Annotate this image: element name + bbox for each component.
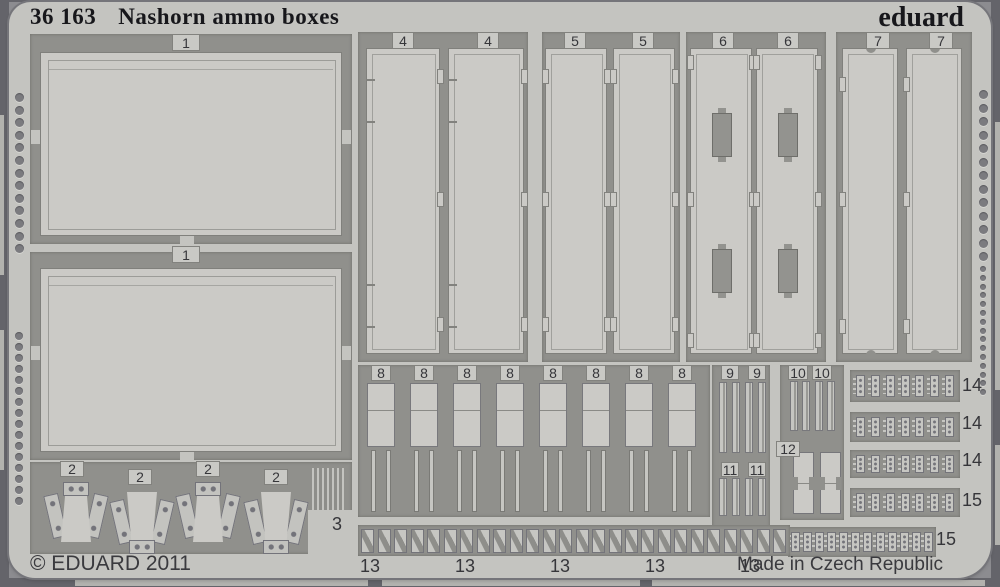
part-13-strap <box>543 529 556 553</box>
perforation-hole <box>15 453 23 461</box>
edge-bracket-tab <box>815 333 822 348</box>
part-8-strap <box>472 450 477 512</box>
part-number-tab-2: 2 <box>60 461 84 477</box>
clasp-part <box>915 417 924 437</box>
etch-line <box>551 54 603 350</box>
part-number-tab-7: 7 <box>866 32 890 49</box>
perforation-hole <box>15 244 24 253</box>
part-number: 14 <box>962 450 982 470</box>
part-8-strap <box>543 450 548 512</box>
perforation-hole <box>979 158 988 167</box>
carrier-bridge <box>341 346 351 360</box>
clasp-prongs <box>942 458 945 470</box>
etch-dash <box>366 121 375 123</box>
clasp-part <box>815 532 824 552</box>
etch-line <box>669 410 695 411</box>
part-number: 10 <box>814 365 830 381</box>
clasp-prongs <box>921 535 924 549</box>
edge-bracket-tab <box>687 192 694 207</box>
part-8-strap <box>644 450 649 512</box>
part-number-tab-2: 2 <box>128 469 152 485</box>
part-panel-1 <box>40 268 342 452</box>
bracket-cap <box>63 482 89 496</box>
part-number-tab-8: 8 <box>414 365 434 381</box>
part-8-plate <box>582 383 610 447</box>
part-9-strip <box>719 382 727 453</box>
clasp-part <box>803 532 812 552</box>
clasp-part <box>856 493 865 512</box>
part-number: 13 <box>360 556 380 576</box>
part-13-strap <box>477 529 490 553</box>
clasp-part <box>886 493 895 512</box>
clasp-part <box>886 375 895 397</box>
part-number: 13 <box>550 556 570 576</box>
etch-dash <box>366 284 375 286</box>
perforation-hole <box>15 387 23 395</box>
part-8-strap <box>429 450 434 512</box>
etch-dash <box>448 284 457 286</box>
part-number: 10 <box>790 365 806 381</box>
part-13-strap <box>641 529 654 553</box>
part-8-plate <box>496 383 524 447</box>
strap-row-13 <box>358 525 790 556</box>
clasp-prongs <box>860 535 863 549</box>
clasp-row <box>850 412 960 442</box>
perforation-hole <box>15 409 23 417</box>
edge-bracket-tab <box>839 77 846 92</box>
etch-fold-line <box>49 285 333 286</box>
edge-bracket-tab <box>687 333 694 348</box>
part-number-tab-1: 1 <box>172 34 200 51</box>
part-number-tab-4: 4 <box>477 32 499 49</box>
part-number-tab-12: 12 <box>776 441 800 457</box>
clasp-part <box>945 493 954 512</box>
part-number-tab-6: 6 <box>712 32 734 49</box>
part-number-text-15: 15 <box>962 490 992 510</box>
part-number-tab-1: 1 <box>172 246 200 263</box>
perforation-hole <box>15 169 24 178</box>
part-number: 7 <box>874 33 882 49</box>
clasp-part <box>871 493 880 512</box>
edge-bracket-tab <box>903 77 910 92</box>
part-number: 11 <box>750 462 765 478</box>
part-13-strap <box>658 529 671 553</box>
part-8-plate <box>453 383 481 447</box>
perforation-hole <box>15 219 24 228</box>
part-13-strap <box>609 529 622 553</box>
part-number-text-14: 14 <box>962 450 992 470</box>
clasp-part <box>915 455 924 473</box>
bracket-body <box>127 492 157 540</box>
edge-sliver <box>0 115 4 275</box>
clasp-prongs <box>942 378 945 394</box>
part-9-strip <box>758 382 766 453</box>
perforation-hole <box>15 464 23 472</box>
part-number-tab-4: 4 <box>392 32 414 49</box>
clasp-part <box>930 375 939 397</box>
perforation-hole <box>980 310 986 316</box>
perforation-hole <box>980 328 986 334</box>
etch-line <box>48 60 336 230</box>
part-number-tab-2: 2 <box>264 469 288 485</box>
part-number-tab-8: 8 <box>629 365 649 381</box>
product-title: Nashorn ammo boxes <box>118 4 339 30</box>
part-3-comb <box>312 468 344 514</box>
part-panel-1 <box>40 52 342 236</box>
edge-bracket-tab <box>437 192 444 207</box>
clasp-part <box>863 532 872 552</box>
perforation-hole <box>15 206 24 215</box>
part-12-piece <box>820 452 841 514</box>
part-number: 8 <box>635 365 643 381</box>
part-panel-5 <box>545 48 607 354</box>
fret-photo: 36 163 Nashorn ammo boxes eduard © EDUAR… <box>0 0 1000 587</box>
part-number-tab-11: 11 <box>721 462 739 477</box>
bracket-body <box>193 494 223 542</box>
latch-stub <box>718 108 726 113</box>
edge-sliver <box>75 580 368 586</box>
latch-stub <box>784 244 792 249</box>
clasp-part <box>930 455 939 473</box>
part-number: 11 <box>723 462 738 478</box>
part-number-tab-2: 2 <box>196 461 220 477</box>
perforation-hole <box>979 252 988 261</box>
clasp-part <box>871 455 880 473</box>
part-number-text-13: 13 <box>455 556 485 576</box>
part-number-text-14: 14 <box>962 413 992 433</box>
perforation-hole <box>979 117 988 126</box>
part-8-plate <box>668 383 696 447</box>
part-13-strap <box>757 529 770 553</box>
clasp-part <box>827 532 836 552</box>
clasp-part <box>901 493 910 512</box>
clasp-prongs <box>812 535 815 549</box>
part-number: 14 <box>962 375 982 395</box>
cut-notch <box>866 350 876 355</box>
clasp-part <box>886 455 895 473</box>
etch-line <box>848 54 894 350</box>
part-11-strip <box>758 478 766 516</box>
brand-logo: eduard <box>878 2 964 34</box>
clasp-part <box>945 417 954 437</box>
perforation-hole <box>980 354 986 360</box>
edge-bracket-tab <box>610 69 617 84</box>
clasp-part <box>901 417 910 437</box>
part-8-strap <box>515 450 520 512</box>
part-number: 6 <box>784 33 792 49</box>
clasp-prongs <box>800 535 803 549</box>
clasp-part <box>915 493 924 512</box>
perforation-hole <box>15 156 24 165</box>
part-number: 14 <box>962 413 982 433</box>
part-number: 3 <box>332 514 342 534</box>
part-number: 8 <box>420 365 428 381</box>
part-8-strap <box>386 450 391 512</box>
perforation-hole <box>15 365 23 373</box>
edge-bracket-tab <box>839 319 846 334</box>
part-11-strip <box>745 478 753 516</box>
part-2-bracket <box>111 488 173 554</box>
part-panel-5 <box>613 48 675 354</box>
latch-stub <box>718 293 726 298</box>
latch-block <box>712 113 732 157</box>
clasp-prongs <box>883 420 886 434</box>
sheet-header: 36 163 Nashorn ammo boxes <box>30 4 339 30</box>
etch-line <box>912 54 958 350</box>
clasp-prongs <box>883 458 886 470</box>
clasp-prongs <box>912 378 915 394</box>
part-13-strap <box>460 529 473 553</box>
clasp-part <box>915 375 924 397</box>
part-9-strip <box>745 382 753 453</box>
part-10-strip <box>802 381 810 431</box>
etch-line <box>540 410 566 411</box>
part-13-strap <box>691 529 704 553</box>
clasp-prongs <box>883 378 886 394</box>
clasp-prongs <box>836 535 839 549</box>
perforation-hole <box>15 497 23 505</box>
perforation-hole <box>980 363 986 369</box>
part-panel-7 <box>906 48 962 354</box>
part-13-strap <box>526 529 539 553</box>
edge-bracket-tab <box>542 192 549 207</box>
clasp-part <box>856 417 865 437</box>
clasp-prongs <box>868 378 871 394</box>
clasp-row <box>850 488 960 517</box>
edge-bracket-tab <box>521 317 528 332</box>
part-13-strap <box>773 529 786 553</box>
part-13-strap <box>394 529 407 553</box>
clasp-prongs <box>885 535 888 549</box>
part-number: 2 <box>68 461 76 477</box>
etch-line <box>454 54 520 350</box>
part-panel-6 <box>756 48 818 354</box>
part-11-strip <box>732 478 740 516</box>
part-number-text-13: 13 <box>550 556 580 576</box>
etch-fold-line <box>49 69 333 70</box>
clasp-part <box>888 532 897 552</box>
edge-bracket-tab <box>815 192 822 207</box>
part-8-plate <box>410 383 438 447</box>
part-2-bracket <box>45 482 107 548</box>
part-number-tab-10: 10 <box>812 365 832 380</box>
clasp-prongs <box>912 420 915 434</box>
latch-stub <box>718 244 726 249</box>
perforation-hole <box>15 232 24 241</box>
clasp-part <box>930 493 939 512</box>
part-number-tab-8: 8 <box>672 365 692 381</box>
edge-sliver <box>0 330 4 470</box>
clasp-prongs <box>853 496 856 509</box>
part-panel-6 <box>690 48 752 354</box>
photo-edge-left <box>0 0 9 587</box>
part-number-tab-8: 8 <box>500 365 520 381</box>
perforation-hole <box>15 143 24 152</box>
clasp-part <box>945 455 954 473</box>
latch-stub <box>784 108 792 113</box>
perforation-hole <box>15 194 24 203</box>
edge-bracket-tab <box>437 69 444 84</box>
perforation-hole <box>15 431 23 439</box>
etch-line <box>626 410 652 411</box>
latch-stub <box>784 293 792 298</box>
edge-bracket-tab <box>672 192 679 207</box>
edge-bracket-tab <box>753 55 760 70</box>
part-number: 6 <box>719 33 727 49</box>
clasp-part <box>886 417 895 437</box>
part-8-strap <box>629 450 634 512</box>
part-13-strap <box>559 529 572 553</box>
edge-bracket-tab <box>815 55 822 70</box>
clasp-prongs <box>898 496 901 509</box>
part-8-strap <box>687 450 692 512</box>
etch-line <box>497 410 523 411</box>
clasp-part <box>856 455 865 473</box>
part-number: 12 <box>780 441 796 457</box>
clasp-part <box>876 532 885 552</box>
etch-line <box>583 410 609 411</box>
edge-bracket-tab <box>753 333 760 348</box>
part-number: 8 <box>463 365 471 381</box>
part-8-strap <box>371 450 376 512</box>
clasp-part <box>900 532 909 552</box>
part-number: 1 <box>182 35 190 51</box>
clasp-part <box>791 532 800 552</box>
edge-bracket-tab <box>521 192 528 207</box>
edge-bracket-tab <box>610 192 617 207</box>
part-number: 4 <box>484 33 492 49</box>
perforation-hole <box>979 198 988 207</box>
clasp-prongs <box>868 496 871 509</box>
etch-line <box>454 410 480 411</box>
part-number: 15 <box>962 490 982 510</box>
clasp-prongs <box>853 458 856 470</box>
clasp-part <box>901 455 910 473</box>
latch-block <box>712 249 732 293</box>
part-8-strap <box>601 450 606 512</box>
clasp-part <box>871 417 880 437</box>
clasp-prongs <box>868 420 871 434</box>
part-number: 8 <box>549 365 557 381</box>
part-13-strap <box>625 529 638 553</box>
latch-stub <box>718 157 726 162</box>
part-13-strap <box>510 529 523 553</box>
bracket-body <box>261 492 291 540</box>
part-number-tab-11: 11 <box>748 462 766 477</box>
part-number: 8 <box>377 365 385 381</box>
cut-notch <box>930 350 940 355</box>
clasp-row <box>850 450 960 478</box>
perforation-hole <box>15 93 24 102</box>
etch-dash <box>448 121 457 123</box>
clasp-prongs <box>873 535 876 549</box>
clasp-prongs <box>868 458 871 470</box>
etch-line <box>824 483 837 484</box>
part-number: 9 <box>726 365 734 381</box>
clasp-prongs <box>927 458 930 470</box>
edge-bracket-tab <box>542 69 549 84</box>
edge-bracket-tab <box>672 317 679 332</box>
perforation-hole <box>979 225 988 234</box>
part-number: 5 <box>571 33 579 49</box>
etch-line <box>368 410 394 411</box>
clasp-prongs <box>898 378 901 394</box>
etch-line <box>762 54 814 350</box>
part-13-strap <box>724 529 737 553</box>
part-number: 13 <box>455 556 475 576</box>
etch-line <box>48 276 336 446</box>
clasp-part <box>856 375 865 397</box>
part-11-strip <box>719 478 727 516</box>
part-number-tab-8: 8 <box>586 365 606 381</box>
clasp-prongs <box>927 378 930 394</box>
clasp-prongs <box>927 420 930 434</box>
perforation-hole <box>15 343 23 351</box>
etch-dash <box>448 326 457 328</box>
edge-bracket-tab <box>672 69 679 84</box>
part-8-plate <box>367 383 395 447</box>
perforation-hole <box>15 398 23 406</box>
made-in-text: Made in Czech Republic <box>737 554 943 576</box>
perforation-hole <box>15 420 23 428</box>
edge-bracket-tab <box>610 317 617 332</box>
edge-bracket-tab <box>687 55 694 70</box>
etch-line <box>619 54 671 350</box>
edge-bracket-tab <box>521 69 528 84</box>
bracket-body <box>61 494 91 542</box>
latch-block <box>778 113 798 157</box>
perforation-hole <box>15 332 23 340</box>
part-number-tab-10: 10 <box>788 365 808 380</box>
part-number-tab-5: 5 <box>564 32 586 49</box>
part-number-text-14: 14 <box>962 375 992 395</box>
perforation-hole <box>979 144 988 153</box>
part-2-bracket <box>177 482 239 548</box>
part-number-text-15: 15 <box>936 529 966 549</box>
latch-block <box>778 249 798 293</box>
part-number: 7 <box>937 33 945 49</box>
clasp-row <box>788 527 936 557</box>
part-13-strap <box>740 529 753 553</box>
etch-line <box>696 54 748 350</box>
part-number: 9 <box>753 365 761 381</box>
edge-sliver <box>652 580 985 586</box>
perforation-hole <box>979 104 988 113</box>
clasp-prongs <box>927 496 930 509</box>
part-13-strap <box>674 529 687 553</box>
clasp-part <box>924 532 933 552</box>
etch-line <box>372 54 436 350</box>
part-number-text-13: 13 <box>645 556 675 576</box>
clasp-part <box>945 375 954 397</box>
carrier-bridge <box>341 130 351 144</box>
part-13-strap <box>361 529 374 553</box>
clasp-part <box>851 532 860 552</box>
part-13-strap <box>576 529 589 553</box>
part-number-tab-8: 8 <box>371 365 391 381</box>
part-number: 8 <box>678 365 686 381</box>
part-13-strap <box>444 529 457 553</box>
part-number-text-13: 13 <box>360 556 390 576</box>
part-9-strip <box>732 382 740 453</box>
perforation-hole <box>15 131 24 140</box>
part-number: 8 <box>506 365 514 381</box>
part-10-strip <box>827 381 835 431</box>
latch-stub <box>784 157 792 162</box>
bracket-cap <box>195 482 221 496</box>
copyright-text: © EDUARD 2011 <box>30 552 191 576</box>
part-13-strap <box>707 529 720 553</box>
